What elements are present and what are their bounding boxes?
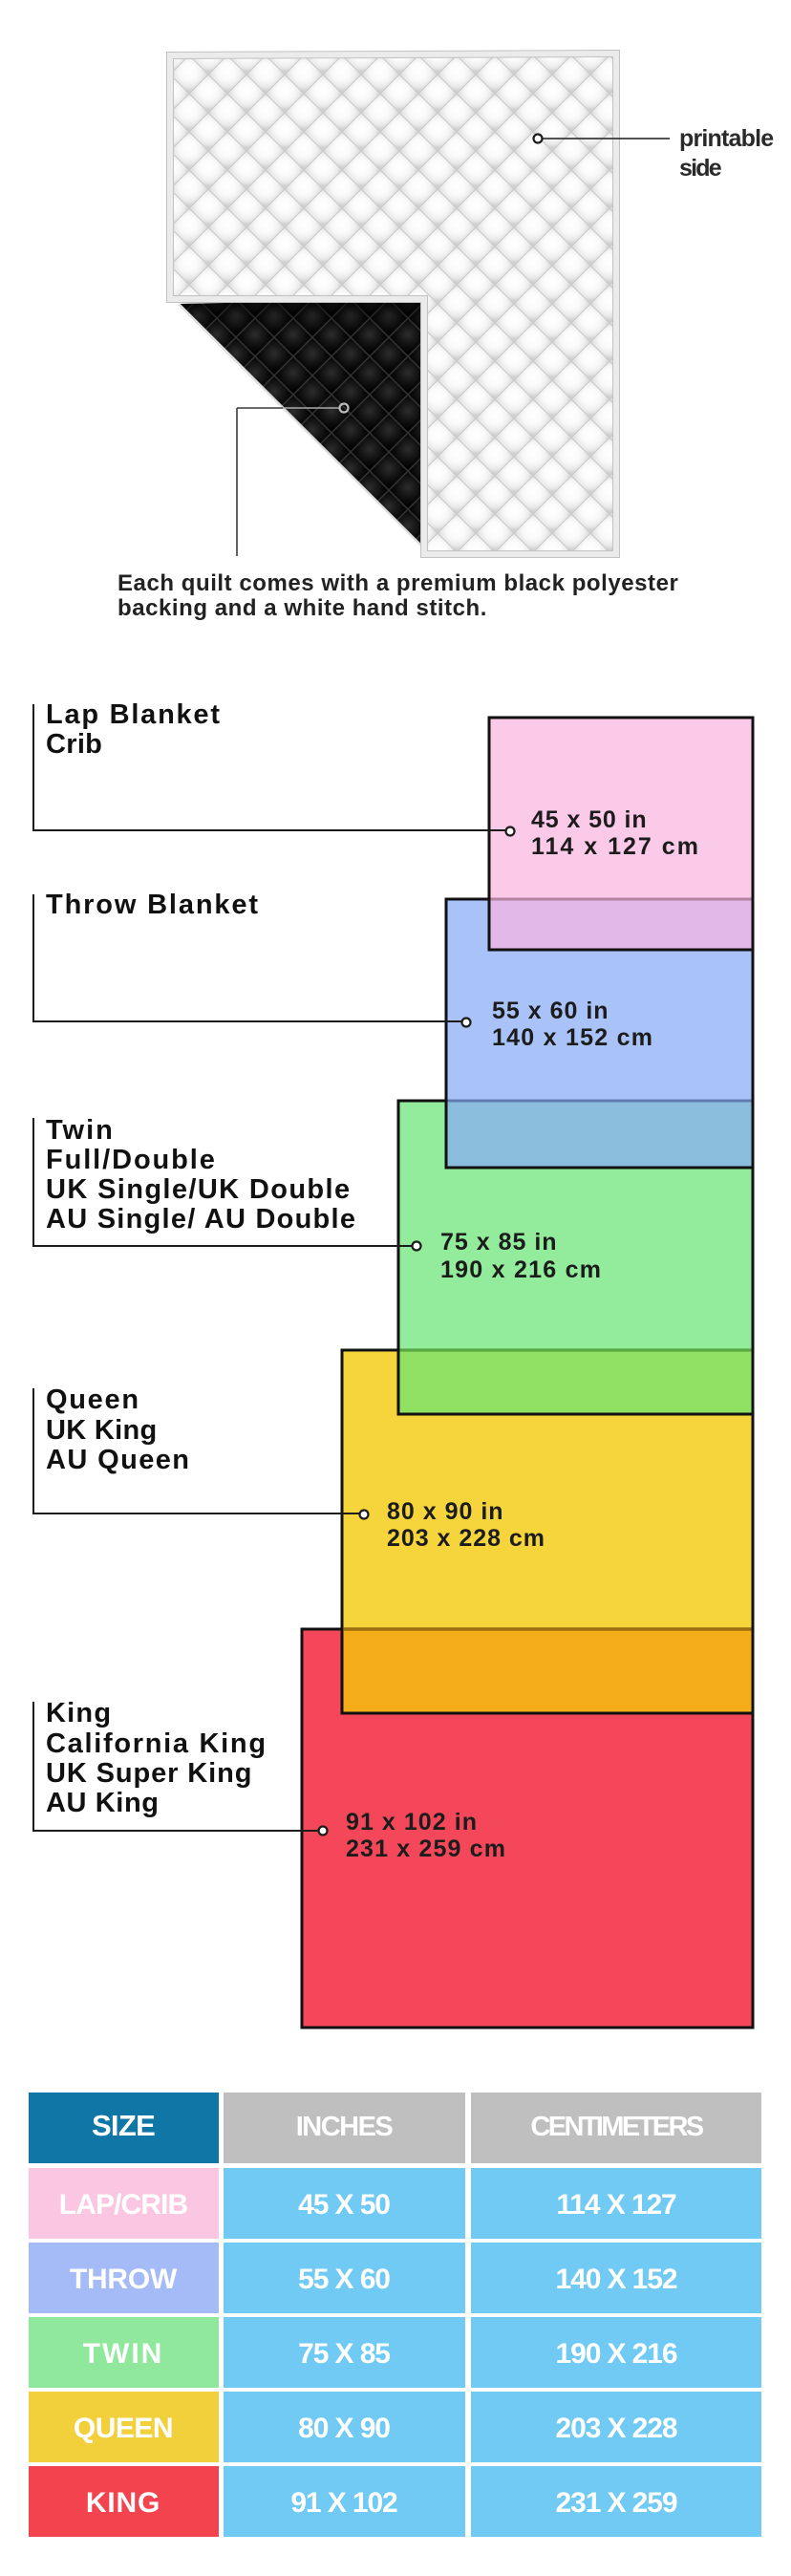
svg-text:AU King: AU King xyxy=(46,1788,160,1818)
svg-text:SIZE: SIZE xyxy=(92,2109,155,2142)
svg-text:King: King xyxy=(46,1698,112,1728)
svg-text:80 x 90 in: 80 x 90 in xyxy=(387,1498,504,1525)
svg-text:55 x 60 in: 55 x 60 in xyxy=(492,998,609,1024)
svg-text:45 x 50 in: 45 x 50 in xyxy=(531,806,648,833)
svg-text:140 X 152: 140 X 152 xyxy=(556,2264,677,2295)
svg-text:Full/Double: Full/Double xyxy=(46,1145,217,1175)
svg-text:231 X 259: 231 X 259 xyxy=(556,2487,677,2519)
svg-text:California King: California King xyxy=(46,1728,267,1759)
svg-text:printable: printable xyxy=(679,125,774,152)
svg-text:91 x 102 in: 91 x 102 in xyxy=(346,1809,478,1835)
svg-text:231 x 259 cm: 231 x 259 cm xyxy=(346,1835,506,1862)
svg-text:AU Single/ AU Double: AU Single/ AU Double xyxy=(46,1204,356,1234)
svg-text:INCHES: INCHES xyxy=(296,2112,394,2142)
svg-text:55 X 60: 55 X 60 xyxy=(298,2264,390,2295)
svg-text:140 x 152 cm: 140 x 152 cm xyxy=(492,1024,653,1051)
svg-text:Crib: Crib xyxy=(46,729,102,760)
svg-text:203 X 228: 203 X 228 xyxy=(556,2413,677,2444)
svg-text:Each quilt comes with a premiu: Each quilt comes with a premium black po… xyxy=(118,570,678,596)
svg-text:AU Queen: AU Queen xyxy=(46,1445,190,1475)
svg-text:45 X 50: 45 X 50 xyxy=(298,2189,390,2221)
svg-text:KING: KING xyxy=(86,2487,160,2519)
svg-text:CENTIMETERS: CENTIMETERS xyxy=(530,2112,704,2142)
svg-text:114 x 127 cm: 114 x 127 cm xyxy=(531,833,700,860)
svg-text:UK Super King: UK Super King xyxy=(46,1758,252,1789)
svg-text:QUEEN: QUEEN xyxy=(74,2413,173,2444)
svg-text:LAP/CRIB: LAP/CRIB xyxy=(59,2189,188,2221)
svg-text:THROW: THROW xyxy=(70,2264,178,2295)
svg-text:TWIN: TWIN xyxy=(83,2338,164,2370)
svg-text:backing and a white hand stitc: backing and a white hand stitch. xyxy=(118,595,487,621)
svg-text:190 x 216 cm: 190 x 216 cm xyxy=(440,1256,602,1283)
svg-text:UK Single/UK Double: UK Single/UK Double xyxy=(46,1174,351,1205)
svg-text:Twin: Twin xyxy=(46,1115,115,1146)
svg-text:Throw Blanket: Throw Blanket xyxy=(46,890,260,920)
svg-text:190 X 216: 190 X 216 xyxy=(556,2338,677,2370)
svg-text:80 X 90: 80 X 90 xyxy=(298,2413,390,2444)
svg-text:114 X 127: 114 X 127 xyxy=(556,2189,676,2221)
svg-text:75 x 85 in: 75 x 85 in xyxy=(440,1229,558,1256)
svg-text:203 x 228 cm: 203 x 228 cm xyxy=(387,1525,545,1552)
svg-text:Queen: Queen xyxy=(46,1385,140,1415)
svg-text:UK King: UK King xyxy=(46,1415,157,1446)
svg-text:Lap Blanket: Lap Blanket xyxy=(46,699,222,730)
svg-text:91 X 102: 91 X 102 xyxy=(290,2487,397,2519)
svg-text:75 X 85: 75 X 85 xyxy=(298,2338,390,2370)
svg-text:side: side xyxy=(679,155,722,182)
